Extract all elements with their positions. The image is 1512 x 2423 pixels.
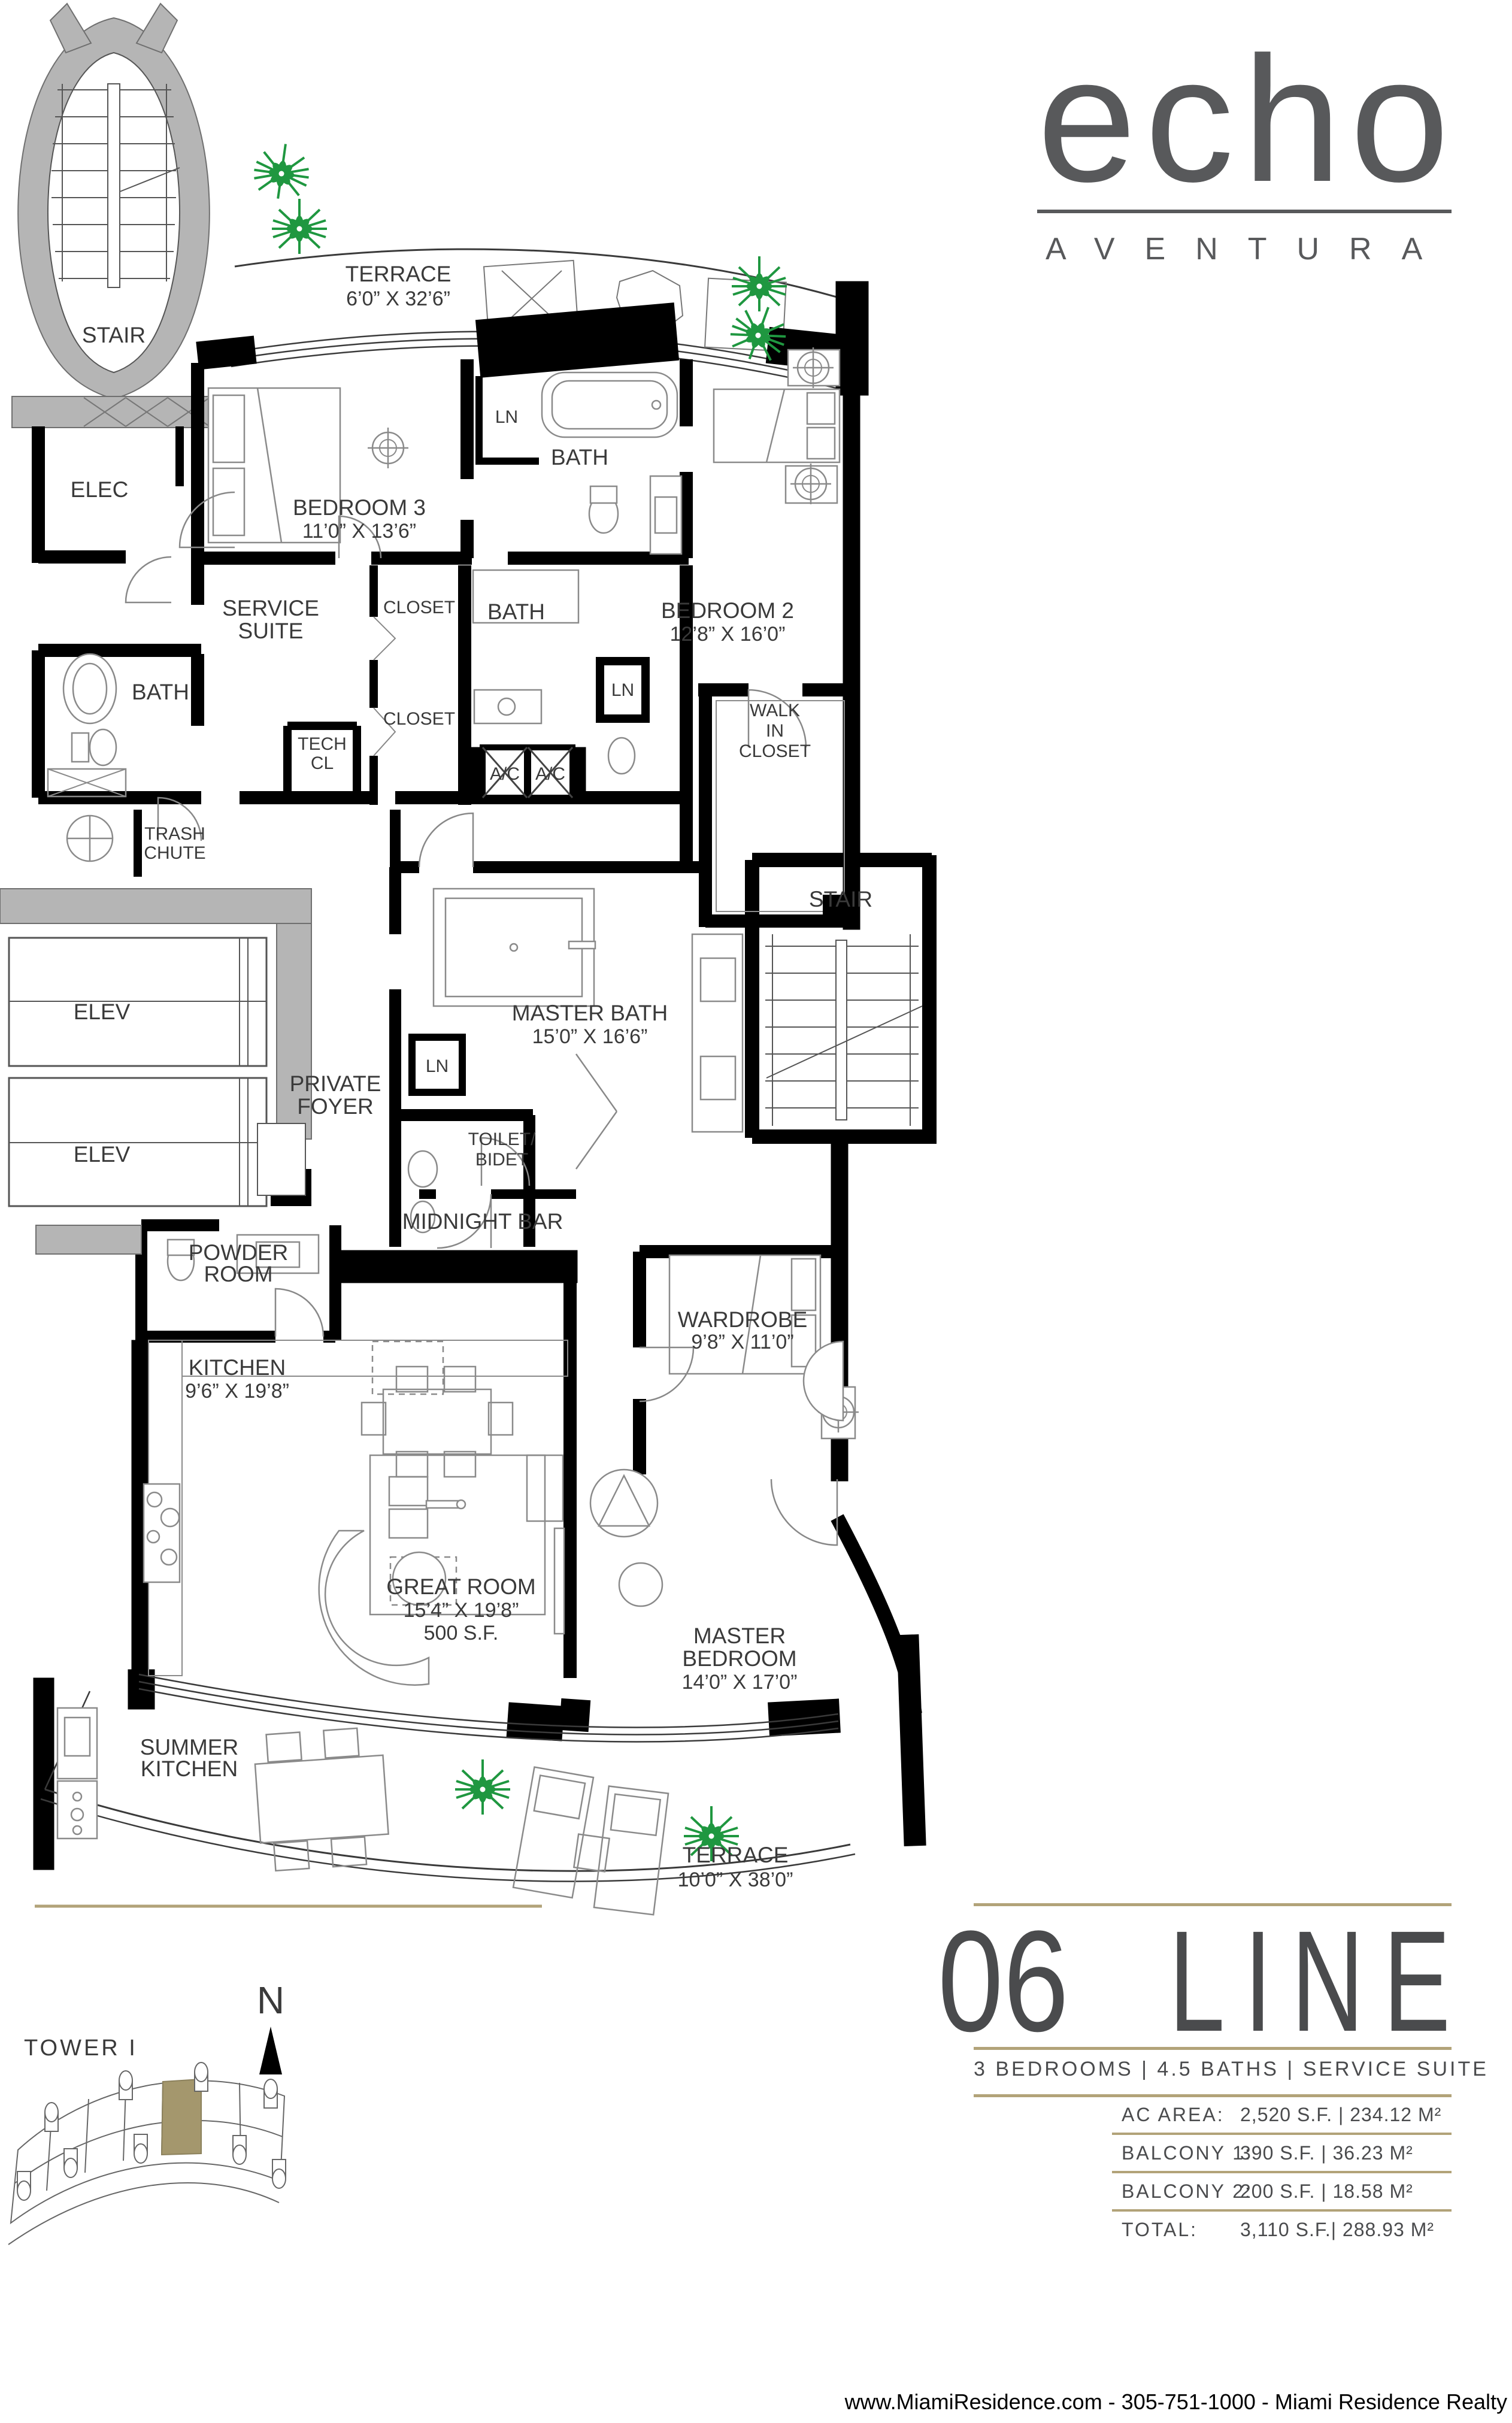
svg-text:6’0” X 32’6”: 6’0” X 32’6” xyxy=(346,287,450,310)
stair-east xyxy=(765,934,922,1126)
label-ln-c: LN xyxy=(426,1056,449,1076)
label-elec: ELEC xyxy=(71,477,129,502)
label-toilet-bidet: TOILET/ xyxy=(468,1129,536,1149)
spec-row-balcony-2: BALCONY 2: 200 S.F. | 18.58 M² xyxy=(1112,2173,1452,2212)
brand-subname: AVENTURA xyxy=(1037,231,1452,267)
key-plan: TOWER I N xyxy=(8,1979,286,2245)
north-label: N xyxy=(257,1979,284,2022)
svg-text:KITCHEN: KITCHEN xyxy=(141,1756,238,1781)
label-elev-1: ELEV xyxy=(74,1000,131,1024)
brand-name: echo xyxy=(1037,44,1452,195)
label-walk-in-closet: WALK xyxy=(750,701,800,720)
label-private-foyer: PRIVATE xyxy=(290,1071,381,1096)
label-stair-nw: STAIR xyxy=(82,323,146,347)
svg-text:12’8” X 16’0”: 12’8” X 16’0” xyxy=(670,623,786,646)
svg-text:14’0” X 17’0”: 14’0” X 17’0” xyxy=(682,1671,798,1694)
svg-text:BEDROOM: BEDROOM xyxy=(682,1646,796,1671)
svg-text:9’8” X 11’0”: 9’8” X 11’0” xyxy=(691,1331,793,1353)
unit-subtitle: 3 BEDROOMS | 4.5 BATHS | SERVICE SUITE xyxy=(974,2058,1452,2081)
svg-text:SUITE: SUITE xyxy=(238,619,304,643)
label-ac-right: A/C xyxy=(535,764,565,784)
brand-logo: echo AVENTURA xyxy=(1037,44,1452,267)
svg-text:10’0” X 38’0”: 10’0” X 38’0” xyxy=(678,1868,793,1891)
label-service-suite: SERVICE xyxy=(222,596,319,620)
stair-shaft-northwest xyxy=(12,4,311,428)
spec-row-ac-area: AC AREA: 2,520 S.F. | 234.12 M² xyxy=(1112,2097,1452,2135)
label-kitchen: KITCHEN xyxy=(189,1355,286,1380)
svg-text:CHUTE: CHUTE xyxy=(144,843,205,863)
label-bath-c: BATH xyxy=(132,680,189,704)
label-elev-2: ELEV xyxy=(74,1142,131,1167)
spec-row-total: TOTAL: 3,110 S.F.| 288.93 M² xyxy=(1112,2212,1452,2248)
label-trash-chute: TRASH xyxy=(144,824,205,844)
elevator-core xyxy=(0,889,311,1254)
footer-contact: www.MiamiResidence.com - 305-751-1000 - … xyxy=(845,2389,1507,2415)
label-terrace-top: TERRACE xyxy=(346,262,452,286)
svg-text:15’4” X 19’8”: 15’4” X 19’8” xyxy=(404,1599,519,1622)
label-master-bedroom: MASTER xyxy=(693,1624,786,1648)
label-stair-e: STAIR xyxy=(809,887,872,911)
label-bath-b: BATH xyxy=(487,599,545,624)
label-ln-b: LN xyxy=(611,680,634,700)
unit-line-block: 06 LINE 3 BEDROOMS | 4.5 BATHS | SERVICE… xyxy=(935,1903,1452,2274)
svg-text:FOYER: FOYER xyxy=(297,1094,373,1119)
svg-text:CLOSET: CLOSET xyxy=(739,741,811,761)
svg-text:11’0” X 13’6”: 11’0” X 13’6” xyxy=(302,520,416,543)
label-tech-cl: TECH xyxy=(298,734,347,754)
tower-label: TOWER I xyxy=(24,2036,138,2061)
svg-text:BIDET: BIDET xyxy=(475,1150,528,1170)
label-closet-a: CLOSET xyxy=(383,598,455,617)
label-ac-left: A/C xyxy=(490,764,520,784)
label-bedroom3: BEDROOM 3 xyxy=(293,495,426,520)
floorplan-sheet: TERRACE 6’0” X 32’6” STAIR ELEC BEDROOM … xyxy=(0,0,1512,2423)
label-bath-a: BATH xyxy=(551,445,608,470)
label-master-bath: MASTER BATH xyxy=(512,1001,668,1025)
svg-text:9’6” X 19’8”: 9’6” X 19’8” xyxy=(185,1380,289,1403)
label-ln-a: LN xyxy=(495,407,518,427)
label-closet-b: CLOSET xyxy=(383,709,455,729)
spec-table: AC AREA: 2,520 S.F. | 234.12 M² BALCONY … xyxy=(1112,2097,1452,2248)
label-midnight-bar: MIDNIGHT BAR xyxy=(402,1209,563,1234)
label-powder-room: POWDER xyxy=(189,1240,289,1265)
svg-text:IN: IN xyxy=(766,721,784,741)
svg-text:500 S.F.: 500 S.F. xyxy=(424,1622,499,1644)
label-bedroom2: BEDROOM 2 xyxy=(661,598,794,623)
label-great-room: GREAT ROOM xyxy=(386,1574,535,1599)
spec-row-balcony-1: BALCONY 1: 390 S.F. | 36.23 M² xyxy=(1112,2135,1452,2173)
line-number: 06 xyxy=(938,1909,1069,2053)
line-word: LINE xyxy=(1169,1909,1469,2053)
accent-rule-mid xyxy=(974,2047,1452,2050)
svg-text:CL: CL xyxy=(311,753,334,773)
label-terrace-bottom: TERRACE xyxy=(683,1843,789,1867)
north-arrow-icon xyxy=(259,2027,282,2074)
label-summer-kitchen: SUMMER xyxy=(140,1735,238,1759)
svg-text:15’0” X 16’6”: 15’0” X 16’6” xyxy=(532,1025,648,1048)
label-wardrobe: WARDROBE xyxy=(678,1307,808,1332)
svg-text:ROOM: ROOM xyxy=(204,1262,272,1286)
